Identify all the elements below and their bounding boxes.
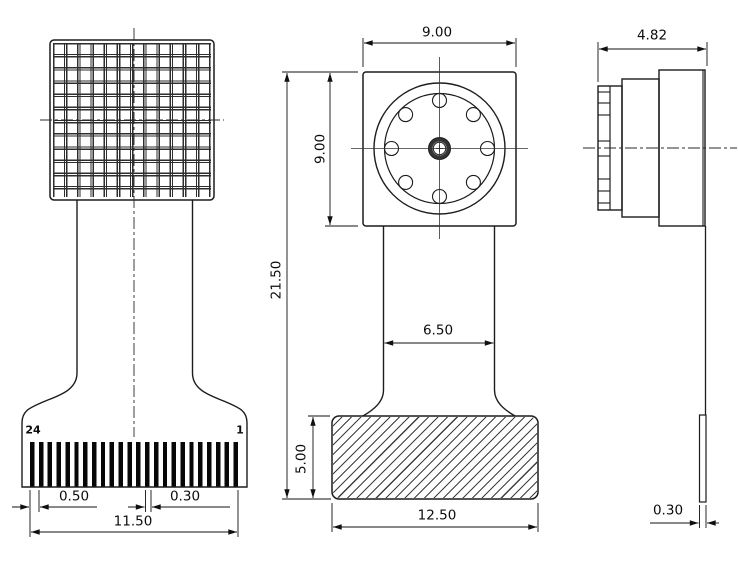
dim-module-height: 9.00 [314,134,328,164]
dim-total-height: 21.50 [270,261,284,300]
back-view [12,28,247,537]
dim-module-width: 9.00 [422,26,452,40]
flex-cable-outline [22,200,247,487]
flex-left-edge [363,226,384,416]
dim-connector-width-back: 11.50 [114,515,153,529]
dim-connector-width-front: 12.50 [418,509,457,523]
pin-number-1: 1 [236,425,244,436]
dim-flex-thickness: 0.30 [653,504,683,518]
front-view-dimensions [282,38,538,532]
connector-stiffener-outline [332,416,538,499]
pin-number-24: 24 [25,425,40,436]
front-view [282,38,538,532]
dim-connector-height: 5.00 [295,444,309,474]
dim-pin-width: 0.30 [170,490,200,504]
drawing-canvas: 24 1 0.50 0.30 11.50 9.00 9.00 21.50 6.5… [0,0,738,565]
connector-side-outline [700,415,707,502]
barrel-thread-rings [598,92,610,203]
drawing-linework [0,0,738,565]
side-view [583,42,737,528]
dim-flex-width: 6.50 [423,324,453,338]
flex-right-edge [495,226,516,416]
dim-depth: 4.82 [637,29,667,43]
dim-pin-pitch: 0.50 [59,490,89,504]
